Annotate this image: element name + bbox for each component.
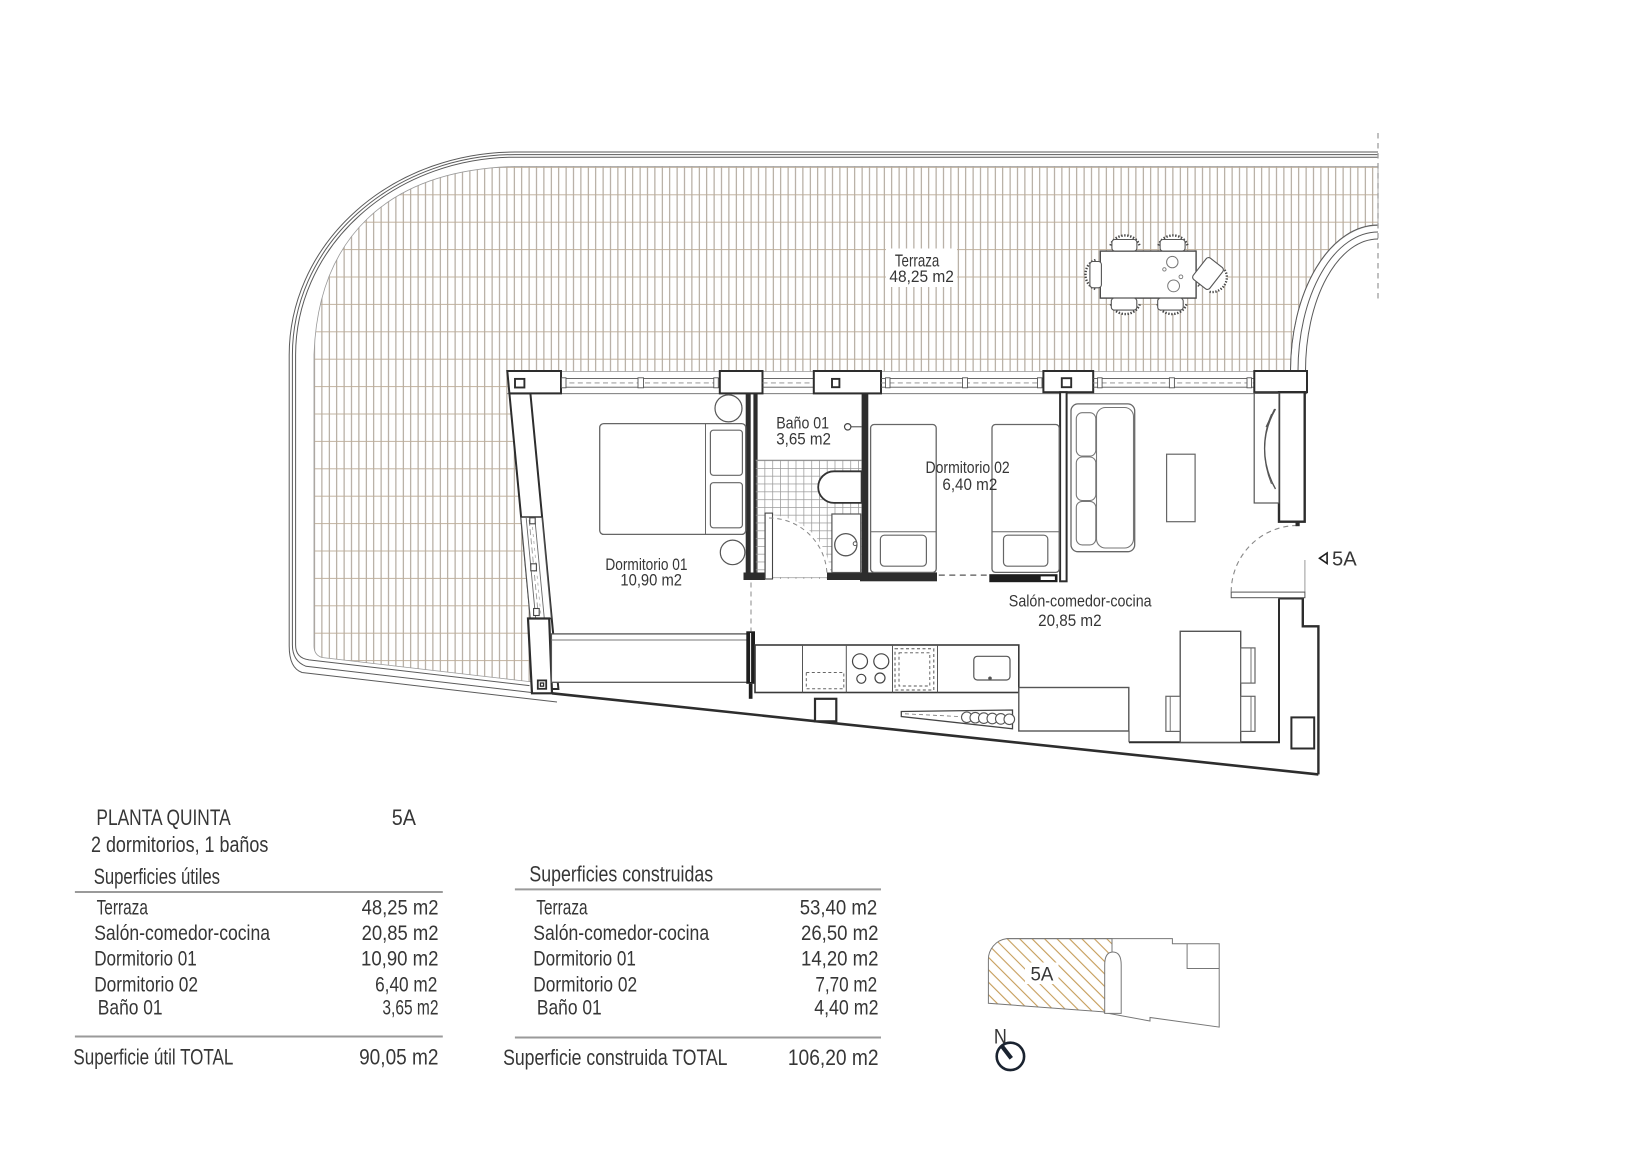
svg-text:Dormitorio 02: Dormitorio 02 bbox=[94, 973, 198, 996]
svg-text:Salón-comedor-cocina: Salón-comedor-cocina bbox=[94, 922, 270, 945]
svg-text:Salón-comedor-cocina: Salón-comedor-cocina bbox=[533, 922, 709, 945]
svg-text:Baño 01: Baño 01 bbox=[537, 997, 602, 1020]
svg-text:53,40 m2: 53,40 m2 bbox=[800, 896, 878, 919]
svg-text:2 dormitorios, 1 baños: 2 dormitorios, 1 baños bbox=[91, 832, 268, 857]
svg-text:20,85 m2: 20,85 m2 bbox=[1038, 611, 1102, 630]
svg-text:6,40 m2: 6,40 m2 bbox=[942, 475, 997, 494]
svg-text:5A: 5A bbox=[392, 805, 416, 830]
svg-text:Dormitorio 01: Dormitorio 01 bbox=[533, 948, 636, 971]
svg-text:Terraza: Terraza bbox=[97, 896, 149, 919]
svg-text:Superficies construidas: Superficies construidas bbox=[529, 862, 713, 887]
svg-text:48,25 m2: 48,25 m2 bbox=[889, 268, 954, 286]
svg-text:10,90 m2: 10,90 m2 bbox=[620, 571, 682, 590]
svg-text:4,40 m2: 4,40 m2 bbox=[814, 997, 878, 1020]
svg-text:6,40 m2: 6,40 m2 bbox=[375, 973, 437, 996]
svg-text:90,05 m2: 90,05 m2 bbox=[359, 1045, 438, 1070]
svg-text:7,70 m2: 7,70 m2 bbox=[815, 973, 877, 996]
svg-text:5A: 5A bbox=[1031, 964, 1054, 985]
svg-text:PLANTA QUINTA: PLANTA QUINTA bbox=[96, 805, 231, 830]
svg-text:20,85 m2: 20,85 m2 bbox=[362, 922, 439, 945]
svg-text:Dormitorio 01: Dormitorio 01 bbox=[94, 948, 197, 971]
svg-text:Salón-comedor-cocina: Salón-comedor-cocina bbox=[1009, 592, 1152, 611]
svg-text:Superficie construida TOTAL: Superficie construida TOTAL bbox=[503, 1045, 727, 1070]
svg-text:5A: 5A bbox=[1332, 548, 1357, 570]
svg-text:14,20 m2: 14,20 m2 bbox=[801, 948, 879, 971]
svg-text:48,25 m2: 48,25 m2 bbox=[362, 896, 439, 919]
svg-text:26,50 m2: 26,50 m2 bbox=[801, 922, 879, 945]
svg-text:Terraza: Terraza bbox=[536, 896, 588, 919]
svg-text:Superficies útiles: Superficies útiles bbox=[94, 864, 220, 889]
svg-text:Superficie útil TOTAL: Superficie útil TOTAL bbox=[73, 1045, 233, 1070]
svg-text:3,65 m2: 3,65 m2 bbox=[382, 997, 438, 1020]
svg-text:106,20 m2: 106,20 m2 bbox=[788, 1045, 879, 1070]
svg-text:10,90 m2: 10,90 m2 bbox=[361, 948, 439, 971]
svg-text:3,65 m2: 3,65 m2 bbox=[776, 430, 831, 448]
svg-text:Dormitorio 02: Dormitorio 02 bbox=[533, 973, 637, 996]
svg-text:Baño 01: Baño 01 bbox=[98, 997, 163, 1020]
